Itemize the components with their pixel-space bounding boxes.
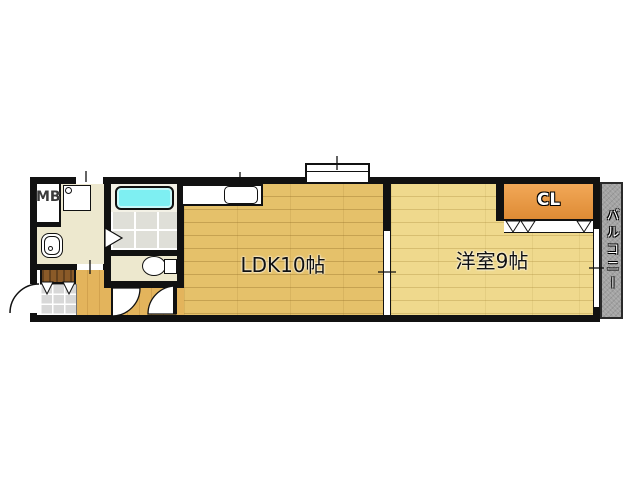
closet-label: CL <box>504 190 593 210</box>
toilet-door-arc <box>112 288 140 316</box>
western-room-label: 洋室9帖 <box>391 245 593 274</box>
meter-box-label: MB <box>36 189 61 205</box>
closet-door-triangle <box>506 221 520 232</box>
door-and-symbol-overlay <box>0 0 640 480</box>
balcony-label: バルコニー <box>599 183 623 318</box>
closet-door-triangle <box>521 221 535 232</box>
closet-door-triangle <box>577 221 591 232</box>
shoe-cabinet-door-triangle <box>63 282 75 294</box>
bathroom-door-triangle <box>105 228 122 248</box>
ldk-door-arc <box>148 286 176 314</box>
floorplan: MB LDK10帖 洋室9帖 CL バルコニー <box>0 0 640 480</box>
floorplan-image: MB LDK10帖 洋室9帖 CL バルコニー <box>0 0 640 480</box>
balcony-label-wrap: バルコニー <box>599 183 623 318</box>
ldk-room-label: LDK10帖 <box>183 249 383 278</box>
entrance-door-arc <box>10 284 39 313</box>
shoe-cabinet-door-triangle <box>41 282 53 294</box>
